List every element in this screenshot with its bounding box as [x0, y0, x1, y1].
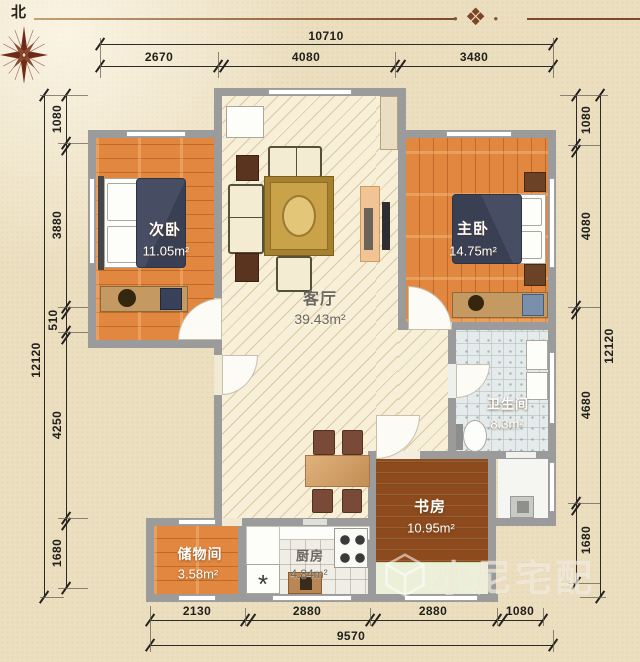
plant-decor: [468, 295, 484, 311]
dim-extension-line: [497, 608, 498, 626]
room-area-master-bedroom: 14.75m²: [449, 244, 497, 259]
watermark-text: 小尼宅配: [435, 548, 595, 602]
plant-decor: [118, 289, 136, 307]
room-label-kitchen: 厨房: [296, 546, 324, 565]
room-area-study: 10.95m²: [407, 521, 455, 536]
header-ornament: ● ❖ ●: [453, 6, 498, 30]
dim-extension-line: [58, 307, 88, 308]
wall-segment: [448, 330, 456, 364]
ornament-icon: ❖: [465, 6, 487, 30]
sound-bar: [364, 208, 373, 250]
dim-top-seg: 3480: [460, 50, 488, 64]
kitchen-pass-through: [303, 519, 327, 525]
dim-bottom-seg: 2880: [293, 604, 321, 618]
dim-extension-line: [560, 95, 608, 96]
window: [89, 178, 95, 264]
dimension-line: [100, 44, 553, 45]
dining-chair: [342, 489, 362, 513]
dim-right-seg: 1080: [579, 106, 593, 134]
dim-extension-line: [568, 307, 600, 308]
dim-right-seg: 4680: [579, 391, 593, 419]
header-rule-left: [34, 18, 455, 20]
bathroom-sink: [526, 340, 548, 370]
dim-left-seg: 510: [46, 309, 60, 330]
dim-extension-line: [245, 608, 246, 626]
header-rule-right: [527, 18, 640, 20]
stove-cooktop: [334, 528, 368, 568]
tall-cabinet: [380, 96, 398, 150]
dim-right-total: 12120: [602, 328, 616, 363]
dining-chair: [312, 489, 333, 513]
window: [272, 595, 352, 601]
door-opening: [506, 452, 536, 458]
sofa-loveseat: [268, 146, 322, 178]
bathroom-sink: [526, 372, 548, 400]
dimension-line: [150, 620, 543, 621]
dim-extension-line: [58, 588, 88, 589]
window: [126, 131, 186, 137]
wall-segment: [238, 518, 246, 602]
dim-bottom-seg: 1080: [506, 604, 534, 618]
door-opening: [222, 518, 242, 526]
floorplan-canvas: ● ❖ ● 北 10710 2670 4080 3480 2130 2880 2…: [0, 0, 640, 662]
dim-extension-line: [543, 608, 544, 626]
compass-icon: [0, 26, 48, 84]
sink-symbol-icon: *: [258, 579, 268, 589]
room-label-living-room: 客厅: [303, 285, 337, 309]
dim-left-seg: 1080: [50, 105, 64, 133]
window: [549, 462, 555, 512]
wall-segment: [448, 398, 456, 455]
nightstand: [524, 172, 546, 192]
dimension-line: [100, 66, 553, 67]
dining-chair: [342, 430, 363, 455]
ornament-dot-icon: ●: [453, 14, 458, 23]
wall-segment: [214, 340, 222, 355]
dim-extension-line: [58, 332, 88, 333]
ornament-dot-icon: ●: [493, 14, 498, 23]
dim-top-seg: 2670: [145, 50, 173, 64]
wall-segment: [452, 322, 556, 330]
dimension-line: [44, 95, 45, 597]
pillow: [520, 231, 542, 259]
dim-left-total: 12120: [29, 342, 43, 377]
dim-extension-line: [568, 145, 600, 146]
dim-bottom-seg: 2880: [419, 604, 447, 618]
tv-screen: [382, 202, 390, 250]
dim-extension-line: [58, 518, 88, 519]
room-area-storage: 3.58m²: [178, 567, 218, 582]
dim-extension-line: [395, 52, 396, 78]
room-area-living-room: 39.43m²: [294, 311, 345, 327]
window: [268, 89, 352, 95]
room-label-master-bedroom: 主卧: [457, 218, 489, 239]
wall-segment: [146, 518, 154, 602]
dim-left-seg: 4250: [50, 411, 64, 439]
pillow: [520, 198, 542, 226]
sofa-three-seat: [228, 184, 264, 254]
wall-segment: [214, 96, 222, 298]
dim-extension-line: [553, 38, 554, 78]
dim-bottom-total: 9570: [337, 629, 365, 643]
dim-left-seg: 1680: [50, 539, 64, 567]
dim-right-seg: 4080: [579, 212, 593, 240]
room-area-kitchen: 4.84m²: [290, 567, 327, 581]
rug: [264, 176, 334, 256]
side-table: [236, 155, 259, 181]
dim-top-seg: 4080: [292, 50, 320, 64]
wall-segment: [398, 138, 406, 322]
room-label-study: 书房: [414, 496, 446, 517]
washing-machine: [510, 496, 534, 518]
dim-extension-line: [370, 608, 371, 626]
room-label-secondary-bedroom: 次卧: [149, 219, 181, 240]
wall-segment: [420, 451, 498, 459]
watermark: 小尼宅配: [383, 548, 595, 602]
nightstand: [524, 264, 546, 286]
vanity-stool: [160, 288, 182, 310]
dim-extension-line: [58, 143, 88, 144]
wall-segment: [88, 340, 222, 348]
door-opening: [448, 364, 456, 398]
toilet-bowl: [463, 420, 487, 452]
dimension-line: [150, 645, 553, 646]
window: [178, 595, 216, 601]
room-label-storage: 储物间: [178, 544, 223, 564]
watermark-cube-icon: [383, 552, 427, 598]
dim-extension-line: [568, 503, 600, 504]
window: [549, 178, 555, 268]
dim-left-seg: 3880: [50, 211, 64, 239]
dim-top-total: 10710: [308, 29, 343, 43]
shoe-cabinet: [226, 106, 264, 138]
window: [178, 519, 216, 525]
dim-extension-line: [218, 52, 219, 78]
wall-segment: [214, 395, 222, 526]
door-opening: [214, 355, 222, 395]
dim-extension-line: [150, 606, 151, 652]
room-area-bathroom: 8.3m²: [490, 417, 523, 432]
window: [446, 131, 512, 137]
dim-extension-line: [100, 38, 101, 78]
dim-extension-line: [40, 95, 88, 96]
dining-table: [305, 455, 370, 487]
dim-extension-line: [553, 630, 554, 652]
side-table: [235, 253, 259, 282]
window: [549, 352, 555, 424]
wall-segment: [488, 518, 556, 526]
room-label-bathroom: 卫生间: [487, 394, 529, 413]
room-area-secondary-bedroom: 11.05m²: [143, 244, 190, 259]
kitchen-sink: *: [246, 564, 280, 594]
toilet-tank: [456, 424, 463, 450]
dim-bottom-seg: 2130: [183, 604, 211, 618]
dim-extension-line: [40, 597, 64, 598]
fish-tank: [522, 294, 544, 316]
north-label: 北: [11, 1, 26, 22]
dining-chair: [313, 430, 335, 455]
